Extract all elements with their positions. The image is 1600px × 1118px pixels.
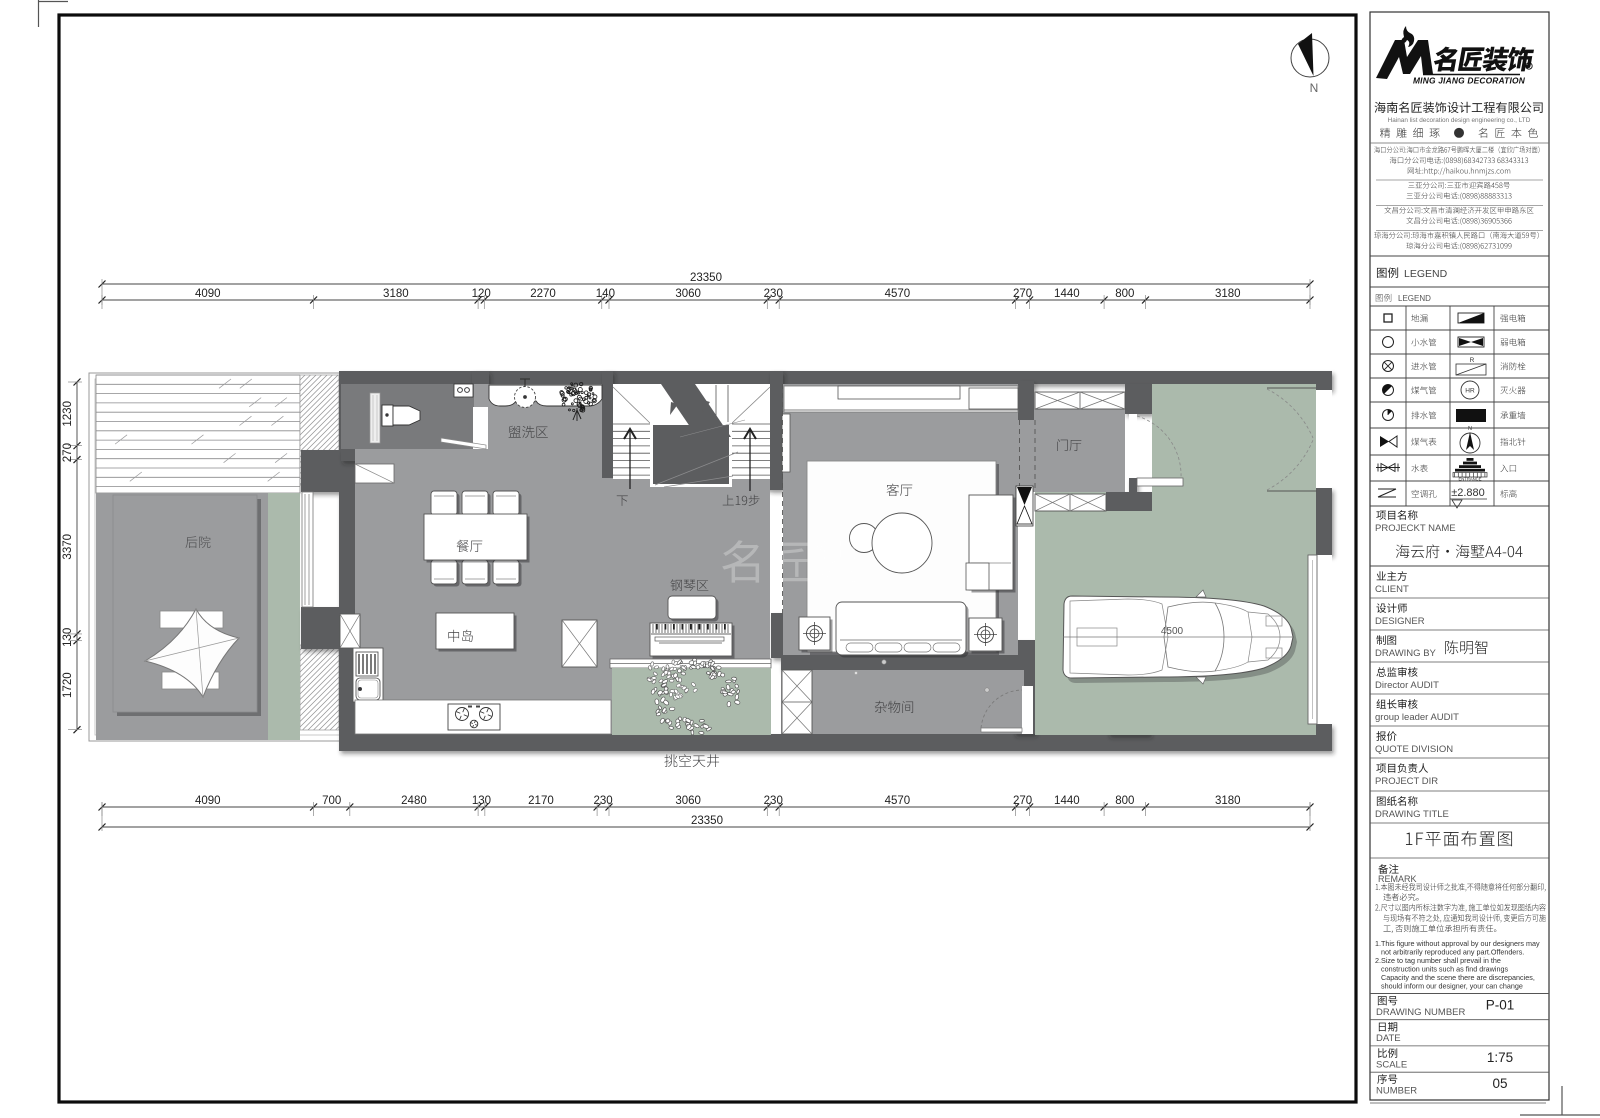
svg-text:140: 140 [596, 288, 615, 300]
svg-text:800: 800 [1115, 795, 1134, 807]
svg-text:DRAWING NUMBER: DRAWING NUMBER [1376, 1007, 1466, 1018]
svg-text:N: N [1310, 81, 1319, 95]
svg-text:230: 230 [593, 795, 612, 807]
svg-text:23350: 23350 [691, 815, 723, 827]
svg-text:1230: 1230 [62, 401, 74, 427]
svg-text:LEGEND: LEGEND [1398, 294, 1431, 303]
svg-text:±2.880: ±2.880 [1451, 487, 1485, 499]
svg-text:3180: 3180 [1215, 795, 1241, 807]
svg-text:ENTRANCE: ENTRANCE [1458, 477, 1481, 482]
svg-text:270: 270 [1013, 795, 1032, 807]
svg-text:N: N [1468, 426, 1472, 432]
svg-text:DATE: DATE [1376, 1033, 1401, 1044]
svg-text:4090: 4090 [195, 288, 221, 300]
svg-text:CLIENT: CLIENT [1375, 584, 1409, 595]
svg-text:05: 05 [1492, 1076, 1507, 1091]
svg-text:LEGEND: LEGEND [1404, 268, 1448, 280]
svg-text:270: 270 [62, 443, 74, 462]
svg-text:REMARK: REMARK [1378, 874, 1417, 884]
svg-text:P-01: P-01 [1486, 998, 1515, 1013]
svg-text:3180: 3180 [1215, 288, 1241, 300]
svg-text:270: 270 [1013, 288, 1032, 300]
svg-text:DRAWING BY: DRAWING BY [1375, 648, 1437, 659]
svg-text:1720: 1720 [62, 672, 74, 698]
svg-text:3370: 3370 [62, 534, 74, 560]
svg-text:4570: 4570 [885, 795, 911, 807]
svg-text:4570: 4570 [885, 288, 911, 300]
svg-text:Hainan list decoration design: Hainan list decoration design engineerin… [1388, 117, 1531, 124]
svg-text:230: 230 [764, 795, 783, 807]
svg-text:130: 130 [62, 628, 74, 647]
svg-text:2270: 2270 [530, 288, 556, 300]
svg-text:should inform our designer, yo: should inform our designer, your can cha… [1381, 982, 1523, 991]
svg-text:130: 130 [472, 795, 491, 807]
svg-text:700: 700 [322, 795, 341, 807]
svg-text:DESIGNER: DESIGNER [1375, 616, 1425, 627]
svg-text:1440: 1440 [1054, 288, 1080, 300]
svg-text:4090: 4090 [195, 795, 221, 807]
svg-text:120: 120 [472, 288, 491, 300]
svg-text:4500: 4500 [1161, 626, 1184, 637]
svg-text:3180: 3180 [383, 288, 409, 300]
svg-text:230: 230 [764, 288, 783, 300]
svg-text:3060: 3060 [675, 795, 701, 807]
svg-text:HR: HR [1465, 388, 1475, 395]
svg-text:1:75: 1:75 [1487, 1050, 1513, 1065]
svg-text:group leader AUDIT: group leader AUDIT [1375, 712, 1459, 723]
svg-text:MING JIANG DECORATION: MING JIANG DECORATION [1413, 76, 1526, 86]
svg-text:2170: 2170 [528, 795, 554, 807]
svg-text:1440: 1440 [1054, 795, 1080, 807]
svg-text:QUOTE DIVISION: QUOTE DIVISION [1375, 744, 1453, 755]
svg-text:2480: 2480 [401, 795, 427, 807]
svg-text:3060: 3060 [675, 288, 701, 300]
svg-text:23350: 23350 [690, 272, 722, 284]
svg-text:PROJECKT NAME: PROJECKT NAME [1375, 523, 1456, 534]
svg-text:800: 800 [1115, 288, 1134, 300]
svg-text:R: R [1470, 357, 1475, 364]
svg-text:Director AUDIT: Director AUDIT [1375, 680, 1439, 691]
svg-text:PROJECT DIR: PROJECT DIR [1375, 776, 1438, 787]
svg-text:NUMBER: NUMBER [1376, 1086, 1417, 1097]
svg-text:SCALE: SCALE [1376, 1060, 1407, 1071]
svg-text:DRAWING TITLE: DRAWING TITLE [1375, 809, 1449, 820]
